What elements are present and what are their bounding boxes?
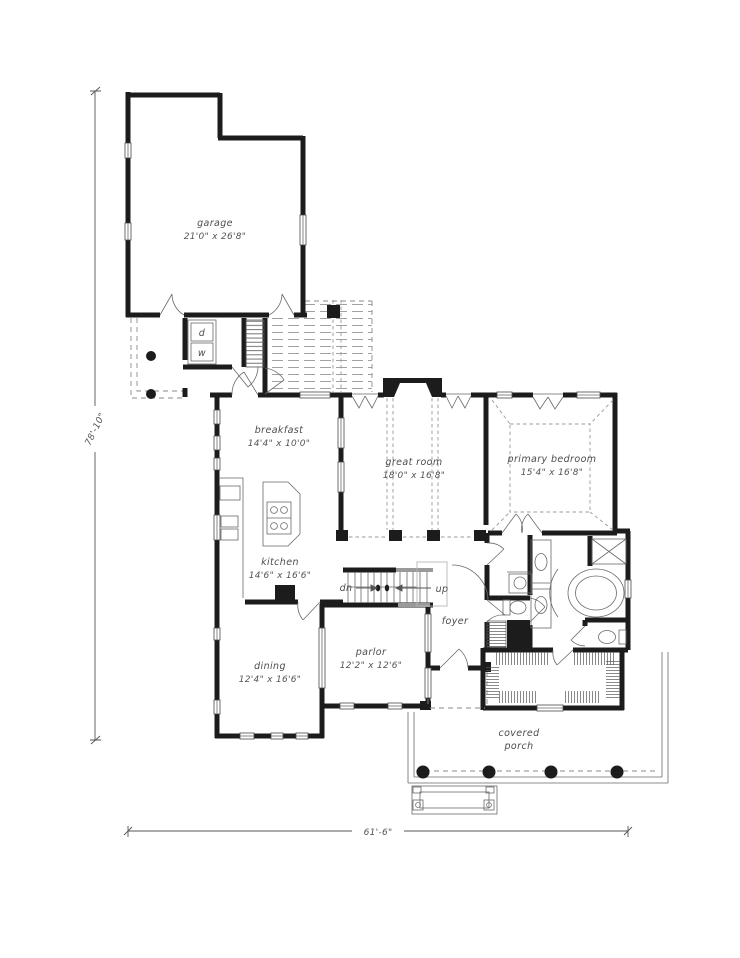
- breakfast-name: breakfast: [255, 425, 304, 436]
- kitchen-name: kitchen: [261, 557, 299, 568]
- washer-label: w: [198, 348, 206, 359]
- kitchen-island: [263, 482, 300, 546]
- toilet: [503, 600, 526, 615]
- great-room-dims: 18'0" x 16'8": [383, 471, 446, 481]
- porch-column: [146, 389, 156, 399]
- rear-stairs: [246, 320, 264, 367]
- room-labels: garage 21'0" x 26'8" breakfast 14'4" x 1…: [184, 218, 597, 752]
- room-kitchen: kitchen 14'6" x 16'6": [249, 557, 312, 581]
- stairs-down-label: dn: [340, 583, 353, 594]
- room-great-room: great room 18'0" x 16'8": [383, 457, 446, 481]
- floor-plan-drawing: d w dn up: [0, 0, 740, 958]
- stairs-up-label: up: [436, 584, 449, 595]
- parlor-dims: 12'2" x 12'6": [340, 661, 403, 671]
- side-entry-porch: [131, 318, 183, 399]
- kitchen-dims: 14'6" x 16'6": [249, 571, 312, 581]
- linen-closet: [487, 621, 506, 647]
- refrigerator: [275, 585, 295, 600]
- room-dining: dining 12'4" x 16'6": [239, 661, 302, 685]
- laundry: d w: [188, 320, 216, 364]
- double-vanity: [531, 540, 551, 628]
- sink-basin: [221, 516, 238, 527]
- cooktop: [267, 502, 291, 534]
- dining-name: dining: [254, 661, 286, 672]
- overall-depth-dimension: 78'-10": [84, 412, 108, 448]
- porch-column: [417, 766, 430, 779]
- great-room-name: great room: [385, 457, 442, 468]
- garage-name: garage: [197, 218, 233, 229]
- parlor-name: parlor: [355, 647, 387, 658]
- fireplace: [383, 378, 442, 397]
- dimension-labels: 78'-10" 61'-6": [84, 412, 393, 838]
- room-garage: garage 21'0" x 26'8": [184, 218, 247, 242]
- overall-width-dimension: 61'-6": [364, 828, 393, 838]
- wall-oven: [220, 486, 240, 500]
- porch-column: [611, 766, 624, 779]
- floor-plan-page: d w dn up: [0, 0, 740, 958]
- exterior-and-interior-walls: [126, 92, 630, 738]
- bathtub: [550, 569, 624, 617]
- room-breakfast: breakfast 14'4" x 10'0": [248, 425, 311, 449]
- covered-porch-line2: porch: [504, 741, 534, 752]
- entry-steps: [412, 786, 497, 814]
- foyer-name: foyer: [442, 616, 469, 627]
- covered-porch: [408, 652, 668, 783]
- shower: [592, 539, 626, 564]
- sink-basin: [221, 529, 238, 540]
- garage-dims: 21'0" x 26'8": [184, 232, 247, 242]
- primary-closet: [486, 652, 620, 703]
- room-primary-bedroom: primary bedroom 15'4" x 16'8": [507, 454, 597, 478]
- doors: [160, 294, 585, 668]
- breakfast-dims: 14'4" x 10'0": [248, 439, 311, 449]
- room-parlor: parlor 12'2" x 12'6": [340, 647, 403, 671]
- kitchen-fixtures: [219, 478, 300, 600]
- primary-bedroom-name: primary bedroom: [507, 454, 597, 465]
- dryer-label: d: [199, 328, 206, 339]
- room-covered-porch: covered porch: [498, 728, 540, 752]
- porch-column: [545, 766, 558, 779]
- covered-porch-line1: covered: [498, 728, 540, 739]
- deck-post: [327, 305, 340, 318]
- dining-dims: 12'4" x 16'6": [239, 675, 302, 685]
- primary-bedroom-dims: 15'4" x 16'8": [521, 468, 584, 478]
- water-closet-toilet: [599, 630, 627, 644]
- porch-column: [483, 766, 496, 779]
- tray-ceiling: [492, 400, 613, 530]
- porch-column: [146, 351, 156, 361]
